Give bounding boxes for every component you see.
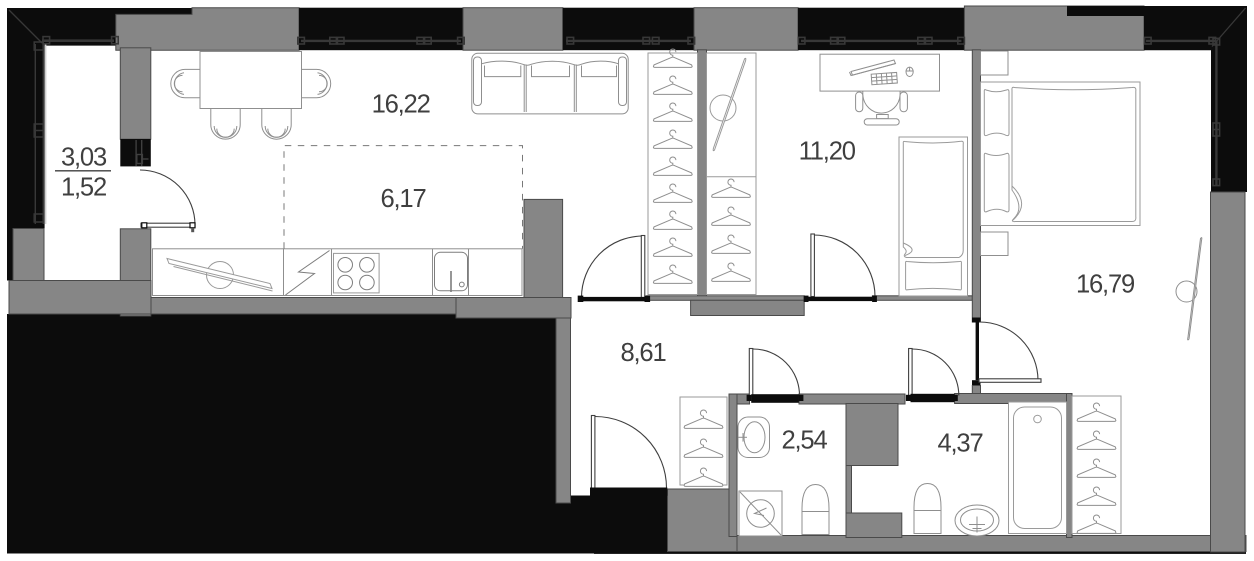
svg-text:6,17: 6,17 xyxy=(380,185,425,213)
svg-text:16,79: 16,79 xyxy=(1076,271,1135,299)
svg-text:16,22: 16,22 xyxy=(372,91,430,119)
svg-text:11,20: 11,20 xyxy=(799,137,856,165)
svg-text:1,52: 1,52 xyxy=(61,174,106,202)
svg-text:4,37: 4,37 xyxy=(937,430,982,458)
svg-text:2,54: 2,54 xyxy=(781,427,827,455)
svg-text:8,61: 8,61 xyxy=(620,339,665,367)
svg-text:3,03: 3,03 xyxy=(61,144,107,172)
